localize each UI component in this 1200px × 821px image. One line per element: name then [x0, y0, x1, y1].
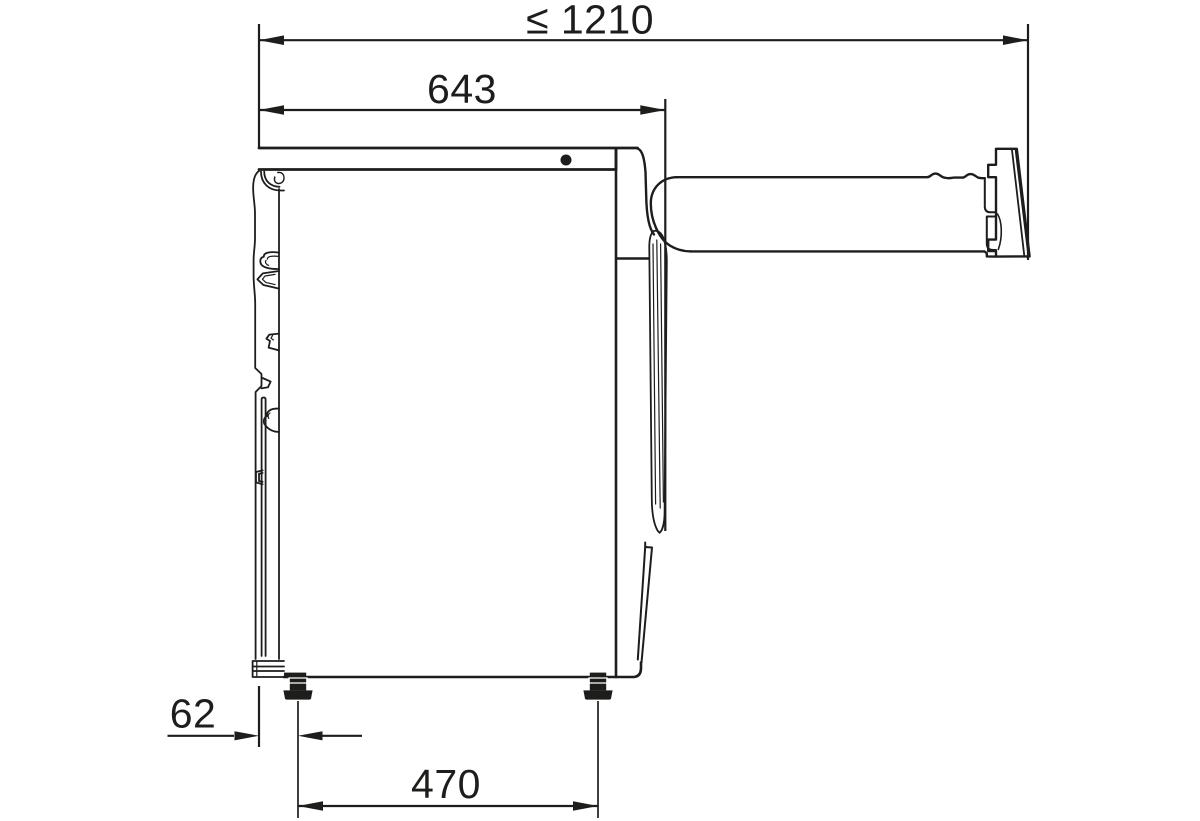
open-door-arm: [651, 174, 996, 257]
door-arm-top-edge: [677, 174, 985, 179]
dim-label-rear-foot-offset: 62: [170, 691, 217, 737]
rear-rail-clip-inner: [268, 413, 270, 418]
front-fascia-top: [617, 149, 654, 259]
door-panel-curl: [998, 214, 1002, 250]
machine-illustration: [253, 148, 1030, 700]
worktop-bolt-dot: [561, 155, 572, 166]
rear-clip-2-inner: [262, 274, 275, 284]
front-fascia-bottom: [638, 543, 652, 663]
rear-tab-1-inner: [271, 335, 273, 340]
rear-clip-1: [260, 252, 279, 269]
dimension-labels: ≤ 1210 643 62 470: [170, 0, 654, 807]
technical-dimension-drawing: ≤ 1210 643 62 470: [0, 0, 1200, 821]
rear-hook: [261, 378, 270, 388]
rear-clip-1-inner: [265, 256, 279, 265]
hose-holder: [261, 172, 284, 191]
dim-label-foot-spacing: 470: [411, 761, 481, 807]
rear-outer-contour: [253, 171, 261, 659]
rear-clip-2: [257, 271, 279, 289]
machine-body-outline: [284, 149, 641, 677]
door-edge-profile: [649, 231, 667, 533]
feet-thread-lines: [289, 678, 607, 683]
dim-label-total-depth-open: ≤ 1210: [526, 0, 654, 43]
hose-holder-curl: [274, 172, 284, 183]
door-panel: [988, 149, 1029, 257]
rear-panel-details: [253, 171, 284, 677]
rear-rail: [262, 398, 266, 657]
worktop: [259, 148, 638, 170]
dim-label-machine-depth: 643: [427, 66, 497, 112]
door-arm-bottom-edge: [691, 251, 997, 256]
appliance-side-view-diagram: ≤ 1210 643 62 470: [0, 0, 1200, 821]
bottom-edge-line: [284, 663, 641, 678]
worktop-outline: [259, 148, 638, 170]
door-panel-contours: [1012, 150, 1028, 256]
